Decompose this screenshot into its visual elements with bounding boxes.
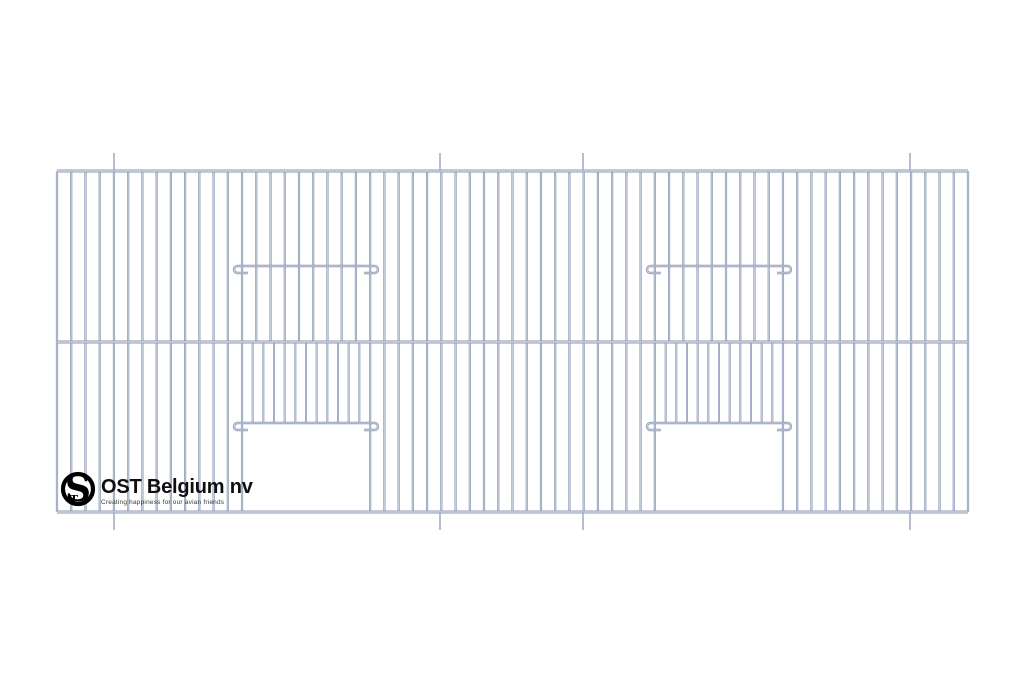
cage-front-drawing: [0, 0, 1024, 683]
door-hook-bar: [234, 423, 378, 430]
door-hook-bar: [647, 423, 791, 430]
ost-logo-tagline: Creating happiness for our avian friends: [101, 499, 253, 506]
door-wire-panel: [253, 342, 360, 423]
ost-logo: S T OST Belgium nv Creating happiness fo…: [60, 467, 253, 513]
ost-logo-wordmark: OST Belgium nv: [101, 477, 253, 497]
ost-logo-text-block: OST Belgium nv Creating happiness for ou…: [101, 467, 253, 506]
logo-letter-t: T: [70, 493, 79, 506]
door-wire-panel: [666, 342, 773, 423]
ost-logo-mark-icon: S T: [60, 467, 98, 513]
drawing-canvas: S T OST Belgium nv Creating happiness fo…: [0, 0, 1024, 683]
